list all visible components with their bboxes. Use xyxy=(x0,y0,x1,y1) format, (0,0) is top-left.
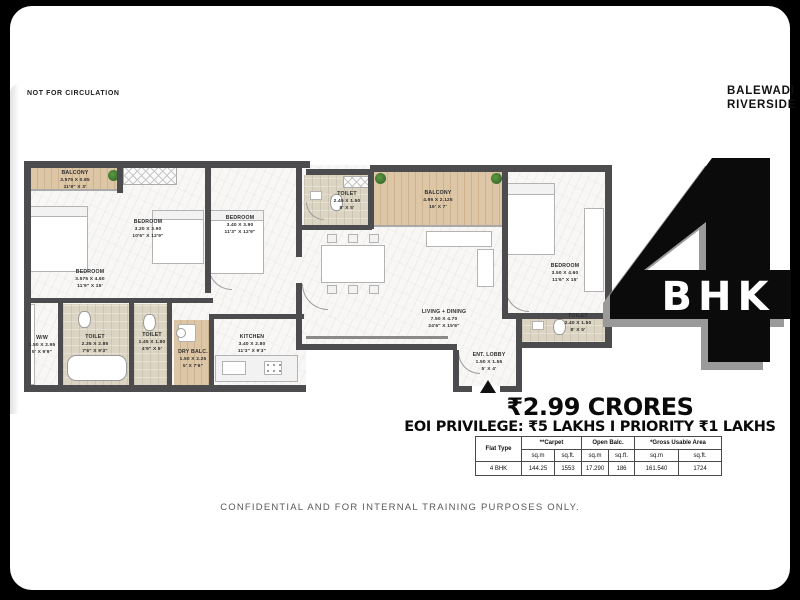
room-label-balcony-main: BALCONY 4.95 X 2.125 16' X 7' xyxy=(403,189,473,212)
room-name: BEDROOM xyxy=(55,268,125,276)
wall xyxy=(296,316,302,350)
room-dim-m: 3.50 X 4.60 xyxy=(530,270,600,277)
wardrobe-2 xyxy=(123,167,177,185)
room-name: BEDROOM xyxy=(205,214,275,222)
room-dim-m: 3.20 X 3.90 xyxy=(113,226,183,233)
room-label-toilet-top: TOILET 2.45 X 1.50 8' X 5' xyxy=(317,190,377,213)
gross-sqm: 161.540 xyxy=(635,462,679,476)
room-dim-ft: 5' X 7'6" xyxy=(166,363,220,370)
room-name: BEDROOM xyxy=(530,262,600,270)
wall xyxy=(516,313,522,348)
wardrobe-3 xyxy=(343,176,370,188)
bhk-label: BHK xyxy=(648,274,788,320)
room-name: LIVING + DINING xyxy=(404,308,484,316)
room-dim-m: 3.575 X 4.60 xyxy=(55,276,125,283)
room-dim-ft: 5' X 4' xyxy=(459,366,519,373)
wall xyxy=(24,298,213,303)
plant-icon xyxy=(491,173,502,184)
tv-console xyxy=(306,336,448,339)
room-label-bedroom-3: BEDROOM 3.40 X 3.90 11'3" X 12'9" xyxy=(205,214,275,237)
room-label-dry-balcony: DRY BALC. 1.50 X 2.25 5' X 7'6" xyxy=(166,348,220,371)
card-edge-shadow xyxy=(10,84,19,414)
wall xyxy=(24,161,31,392)
room-dim-m: 3.40 X 2.80 xyxy=(217,341,287,348)
brand-line-2: RIVERSIDE xyxy=(727,98,796,112)
room-dim-m: 2.35 X 2.85 xyxy=(65,341,125,348)
table-row: 4 BHK 144.25 1553 17.290 186 161.540 172… xyxy=(476,462,722,476)
room-name: TOILET xyxy=(65,333,125,341)
wall xyxy=(300,225,372,230)
room-name: KITCHEN xyxy=(217,333,287,341)
flat-type-value: 4 BHK xyxy=(476,462,522,476)
dining-chair xyxy=(369,285,379,294)
room-dim-m: 2.40 X 1.50 xyxy=(548,320,608,327)
room-dim-ft: 16' X 7' xyxy=(403,204,473,211)
room-label-toilet-left: TOILET 2.35 X 2.85 7'6" X 9'3" xyxy=(65,333,125,356)
dining-chair xyxy=(327,234,337,243)
big-4-numeral: 4 xyxy=(600,140,800,385)
col-open-balc: Open Balc. xyxy=(582,437,635,450)
room-name: BALCONY xyxy=(403,189,473,197)
col-flat-type: Flat Type xyxy=(476,437,522,462)
dining-chair xyxy=(348,285,358,294)
dining-chair xyxy=(369,234,379,243)
room-dim-ft: 24'6" X 15'6" xyxy=(404,323,484,330)
room-name: W/W xyxy=(17,334,67,342)
room-name: DRY BALC. xyxy=(166,348,220,356)
wall xyxy=(296,344,457,350)
room-label-bedroom-left: BEDROOM 3.575 X 4.60 11'9" X 15' xyxy=(55,268,125,291)
room-label-ent-lobby: ENT. LOBBY 1.50 X 1.55 5' X 4' xyxy=(459,351,519,374)
room-dim-ft: 5' X 9'9" xyxy=(17,349,67,356)
wall xyxy=(296,283,302,318)
unit-header: sq.m xyxy=(582,450,609,462)
unit-header: sq.m xyxy=(635,450,679,462)
room-dim-m: 1.45 X 1.80 xyxy=(124,339,180,346)
room-dim-ft: 11'6" X 15' xyxy=(530,277,600,284)
room-name: BALCONY xyxy=(40,169,110,177)
basin-right xyxy=(532,321,544,330)
col-carpet: **Carpet xyxy=(522,437,582,450)
room-label-balcony-left: BALCONY 3.575 X 0.95 11'9" X 3' xyxy=(40,169,110,192)
room-dim-ft: 7'6" X 9'3" xyxy=(65,348,125,355)
price-headline: ₹2.99 CRORES xyxy=(440,393,760,421)
wall xyxy=(117,161,123,193)
kitchen-hob xyxy=(264,361,282,375)
wc-mid xyxy=(143,314,156,331)
room-dim-ft: 11'9" X 15' xyxy=(55,283,125,290)
room-label-toilet-right: TOILET 2.40 X 1.50 8' X 5' xyxy=(548,312,608,335)
wall xyxy=(24,161,310,168)
room-dim-ft: 11'3" X 9'3" xyxy=(217,348,287,355)
wall xyxy=(296,165,302,257)
room-dim-m: 7.50 X 4.70 xyxy=(404,316,484,323)
room-dim-m: 1.50 X 2.25 xyxy=(166,356,220,363)
brand-line-1: BALEWADI xyxy=(727,84,796,98)
unit-header: sq.ft. xyxy=(609,450,635,462)
room-label-kitchen: KITCHEN 3.40 X 2.80 11'3" X 9'3" xyxy=(217,333,287,356)
sofa xyxy=(426,231,492,247)
bed-1-pillow xyxy=(28,206,88,217)
room-dim-ft: 11'3" X 12'9" xyxy=(205,229,275,236)
brand-name: BALEWADI RIVERSIDE xyxy=(727,84,796,113)
room-name: TOILET xyxy=(124,331,180,339)
unit-header: sq.ft. xyxy=(555,450,582,462)
dining-chair xyxy=(327,285,337,294)
room-dim-m: 3.40 X 3.90 xyxy=(205,222,275,229)
confidential-disclaimer: CONFIDENTIAL AND FOR INTERNAL TRAINING P… xyxy=(0,502,800,513)
carpet-sqm: 144.25 xyxy=(522,462,555,476)
dining-chair xyxy=(348,234,358,243)
room-label-bedroom-2: BEDROOM 3.20 X 3.90 10'6" X 12'9" xyxy=(113,218,183,241)
room-dim-m: 3.575 X 0.95 xyxy=(40,177,110,184)
room-dim-ft: 8' X 5' xyxy=(548,327,608,334)
wall xyxy=(502,165,508,319)
col-gross-usable: *Gross Usable Area xyxy=(635,437,722,450)
room-dim-m: 1.50 X 1.55 xyxy=(459,359,519,366)
room-name: TOILET xyxy=(548,312,608,320)
room-name: BEDROOM xyxy=(113,218,183,226)
wall xyxy=(24,385,306,392)
watermark-text: NOT FOR CIRCULATION xyxy=(27,90,120,97)
wall xyxy=(370,165,612,172)
room-name: TOILET xyxy=(317,190,377,198)
area-table: Flat Type **Carpet Open Balc. *Gross Usa… xyxy=(475,436,722,476)
room-dim-ft: 8' X 5' xyxy=(317,205,377,212)
room-dim-m: 1.50 X 2.95 xyxy=(17,342,67,349)
kitchen-sink xyxy=(222,361,246,375)
entry-arrow-icon xyxy=(480,380,496,393)
wc-left xyxy=(78,311,91,328)
room-dim-ft: 10'6" X 12'9" xyxy=(113,233,183,240)
sofa-chaise xyxy=(477,249,494,287)
room-dim-m: 2.45 X 1.50 xyxy=(317,198,377,205)
room-dim-ft: 11'9" X 3' xyxy=(40,184,110,191)
dining-table xyxy=(321,245,385,283)
unit-header: sq.ft. xyxy=(679,450,722,462)
balc-sqft: 186 xyxy=(609,462,635,476)
wall xyxy=(209,314,304,319)
balcony-edge xyxy=(374,225,505,227)
room-label-bedroom-right: BEDROOM 3.50 X 4.60 11'6" X 15' xyxy=(530,262,600,285)
bed-4-pillow xyxy=(507,183,555,195)
wall xyxy=(516,342,612,348)
gross-sqft: 1724 xyxy=(679,462,722,476)
eoi-privilege-line: EOI PRIVILEGE: ₹5 LAKHS I PRIORITY ₹1 LA… xyxy=(388,419,792,435)
plant-icon xyxy=(375,173,386,184)
balc-sqm: 17.290 xyxy=(582,462,609,476)
flyer-page: NOT FOR CIRCULATION BALEWADI RIVERSIDE xyxy=(0,0,800,600)
wall xyxy=(306,169,374,175)
room-dim-m: 4.95 X 2.125 xyxy=(403,197,473,204)
room-label-ww: W/W 1.50 X 2.95 5' X 9'9" xyxy=(17,334,67,357)
room-name: ENT. LOBBY xyxy=(459,351,519,359)
carpet-sqft: 1553 xyxy=(555,462,582,476)
bathtub xyxy=(67,355,127,381)
room-label-living-dining: LIVING + DINING 7.50 X 4.70 24'6" X 15'6… xyxy=(404,308,484,331)
unit-header: sq.m xyxy=(522,450,555,462)
